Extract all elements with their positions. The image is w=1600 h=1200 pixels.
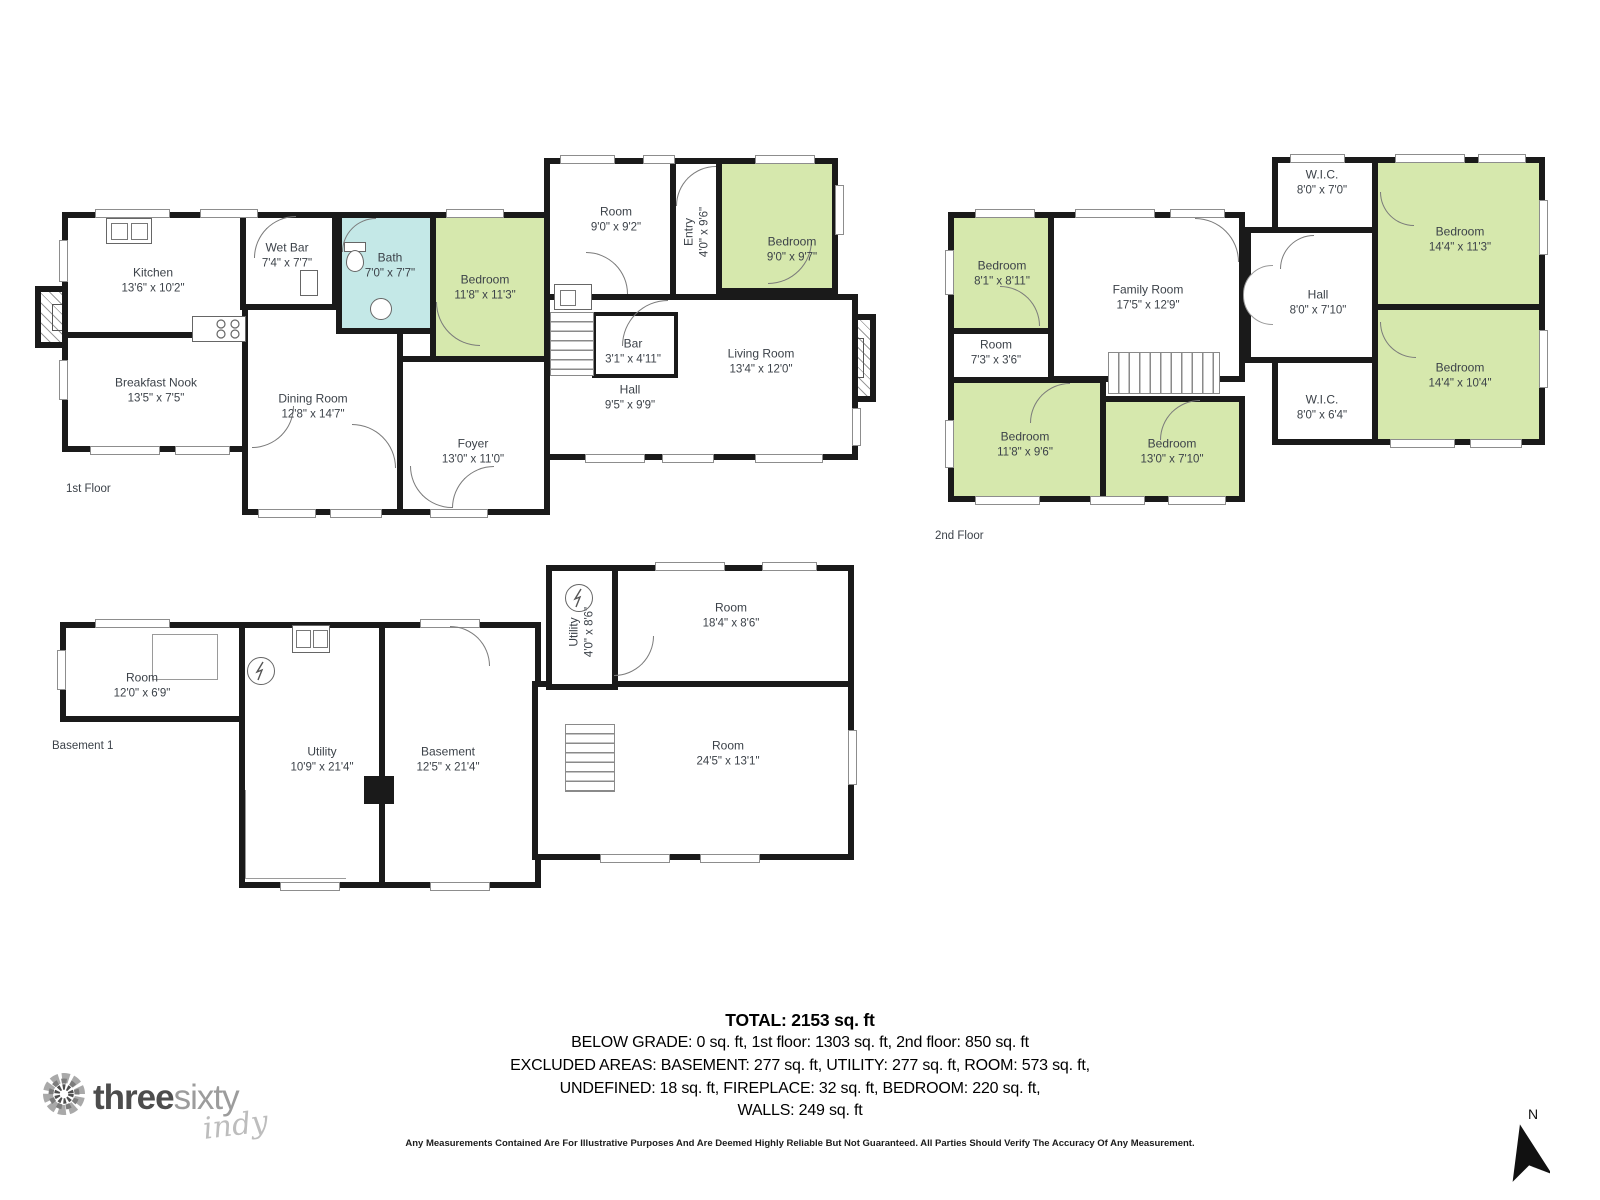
window — [848, 730, 857, 785]
room-label: W.I.C.8'0" x 6'4" — [1297, 393, 1347, 424]
stairs-basement — [565, 724, 615, 792]
window — [585, 454, 645, 463]
room-label: Bedroom13'0" x 7'10" — [1140, 437, 1203, 468]
window — [1539, 330, 1548, 388]
window — [655, 562, 725, 571]
window — [662, 454, 714, 463]
room-label: Foyer13'0" x 11'0" — [442, 437, 504, 468]
toilet-bowl-icon — [346, 250, 364, 272]
room-label: W.I.C.8'0" x 7'0" — [1297, 168, 1347, 199]
window — [560, 155, 615, 164]
laundry-sink-icon — [292, 625, 330, 653]
window — [1168, 496, 1226, 505]
room-label: Room7'3" x 3'6" — [971, 338, 1021, 369]
room-label: Family Room17'5" x 12'9" — [1113, 283, 1184, 314]
window — [200, 209, 258, 218]
floor-label-first: 1st Floor — [66, 483, 111, 495]
window — [280, 882, 340, 891]
room-label: Bedroom9'0" x 9'7" — [767, 235, 817, 266]
room-label: Dining Room12'8" x 14'7" — [278, 392, 347, 423]
room-label: Room9'0" x 9'2" — [591, 205, 641, 236]
summary-line-1: BELOW GRADE: 0 sq. ft, 1st floor: 1303 s… — [0, 1034, 1600, 1052]
window — [95, 209, 170, 218]
window — [700, 854, 760, 863]
window — [446, 209, 504, 218]
room-label: Bar3'1" x 4'11" — [605, 337, 661, 368]
room-label: Entry4'0" x 9'6" — [682, 207, 713, 257]
window — [95, 619, 170, 628]
window — [643, 155, 675, 164]
room-label: Room24'5" x 13'1" — [696, 739, 759, 770]
room-label: Living Room13'4" x 12'0" — [728, 347, 795, 378]
room-label: Room18'4" x 8'6" — [703, 601, 760, 632]
window — [835, 185, 844, 235]
workbench-outline — [245, 790, 346, 879]
room-label: Wet Bar7'4" x 7'7" — [262, 241, 312, 272]
window — [1390, 439, 1455, 448]
floor-label-basement: Basement 1 — [52, 740, 113, 752]
window — [258, 509, 316, 518]
window — [1090, 496, 1145, 505]
support-pillar — [364, 776, 394, 804]
room-label: Room12'0" x 6'9" — [114, 671, 171, 702]
logo-pinwheel-icon — [40, 1070, 88, 1118]
window — [1075, 209, 1155, 218]
stairs-first-floor — [550, 312, 594, 376]
window — [762, 562, 817, 571]
window — [430, 509, 488, 518]
room-label: Bath7'0" x 7'7" — [365, 251, 415, 282]
stairs-second-floor — [1108, 352, 1220, 394]
room-label: Bedroom14'4" x 10'4" — [1428, 361, 1491, 392]
electrical-icon — [247, 657, 275, 685]
room-label: Basement12'5" x 21'4" — [416, 745, 479, 776]
room-label: Hall9'5" x 9'9" — [605, 383, 655, 414]
north-arrow-icon — [1500, 1122, 1550, 1184]
room-label: Hall8'0" x 7'10" — [1290, 288, 1347, 319]
room-label: Bedroom8'1" x 8'11" — [974, 259, 1030, 290]
window — [945, 250, 954, 295]
room-label: Breakfast Nook13'5" x 7'5" — [115, 376, 197, 407]
bath-sink-icon — [370, 298, 392, 320]
room-label: Bedroom14'4" x 11'3" — [1429, 225, 1491, 256]
window — [1470, 439, 1522, 448]
summary-line-2: EXCLUDED AREAS: BASEMENT: 277 sq. ft, UT… — [0, 1057, 1600, 1075]
window — [975, 209, 1035, 218]
room-label: Utility4'0" x 8'6" — [567, 607, 598, 657]
floorplan-sheet: { "floors": { "first": { "label": "1st F… — [0, 0, 1600, 1200]
wetbar-sink-icon — [300, 270, 318, 296]
window — [59, 240, 68, 282]
window — [755, 454, 823, 463]
room-label: Bedroom11'8" x 11'3" — [454, 273, 515, 304]
window — [1170, 209, 1225, 218]
window — [59, 360, 68, 400]
north-label: N — [1528, 1106, 1538, 1122]
room-label: Utility10'9" x 21'4" — [290, 745, 353, 776]
window — [1539, 200, 1548, 255]
window — [600, 854, 670, 863]
room-label: Kitchen13'6" x 10'2" — [121, 266, 184, 297]
room-label: Bedroom11'8" x 9'6" — [997, 430, 1053, 461]
window — [1395, 154, 1465, 163]
summary-total: TOTAL: 2153 sq. ft — [0, 1010, 1600, 1031]
window — [175, 446, 230, 455]
window — [1478, 154, 1526, 163]
window — [852, 408, 861, 446]
floor-label-second: 2nd Floor — [935, 530, 984, 542]
window — [57, 650, 66, 690]
window — [945, 420, 954, 468]
window — [755, 155, 815, 164]
window — [330, 509, 382, 518]
stove-icon — [192, 316, 246, 342]
window — [1290, 154, 1345, 163]
logo-word-three: three — [93, 1078, 174, 1117]
window — [90, 446, 160, 455]
summary-line-3: UNDEFINED: 18 sq. ft, FIREPLACE: 32 sq. … — [0, 1080, 1600, 1098]
kitchen-sink-icon — [106, 218, 152, 244]
window — [975, 496, 1040, 505]
window — [430, 882, 490, 891]
